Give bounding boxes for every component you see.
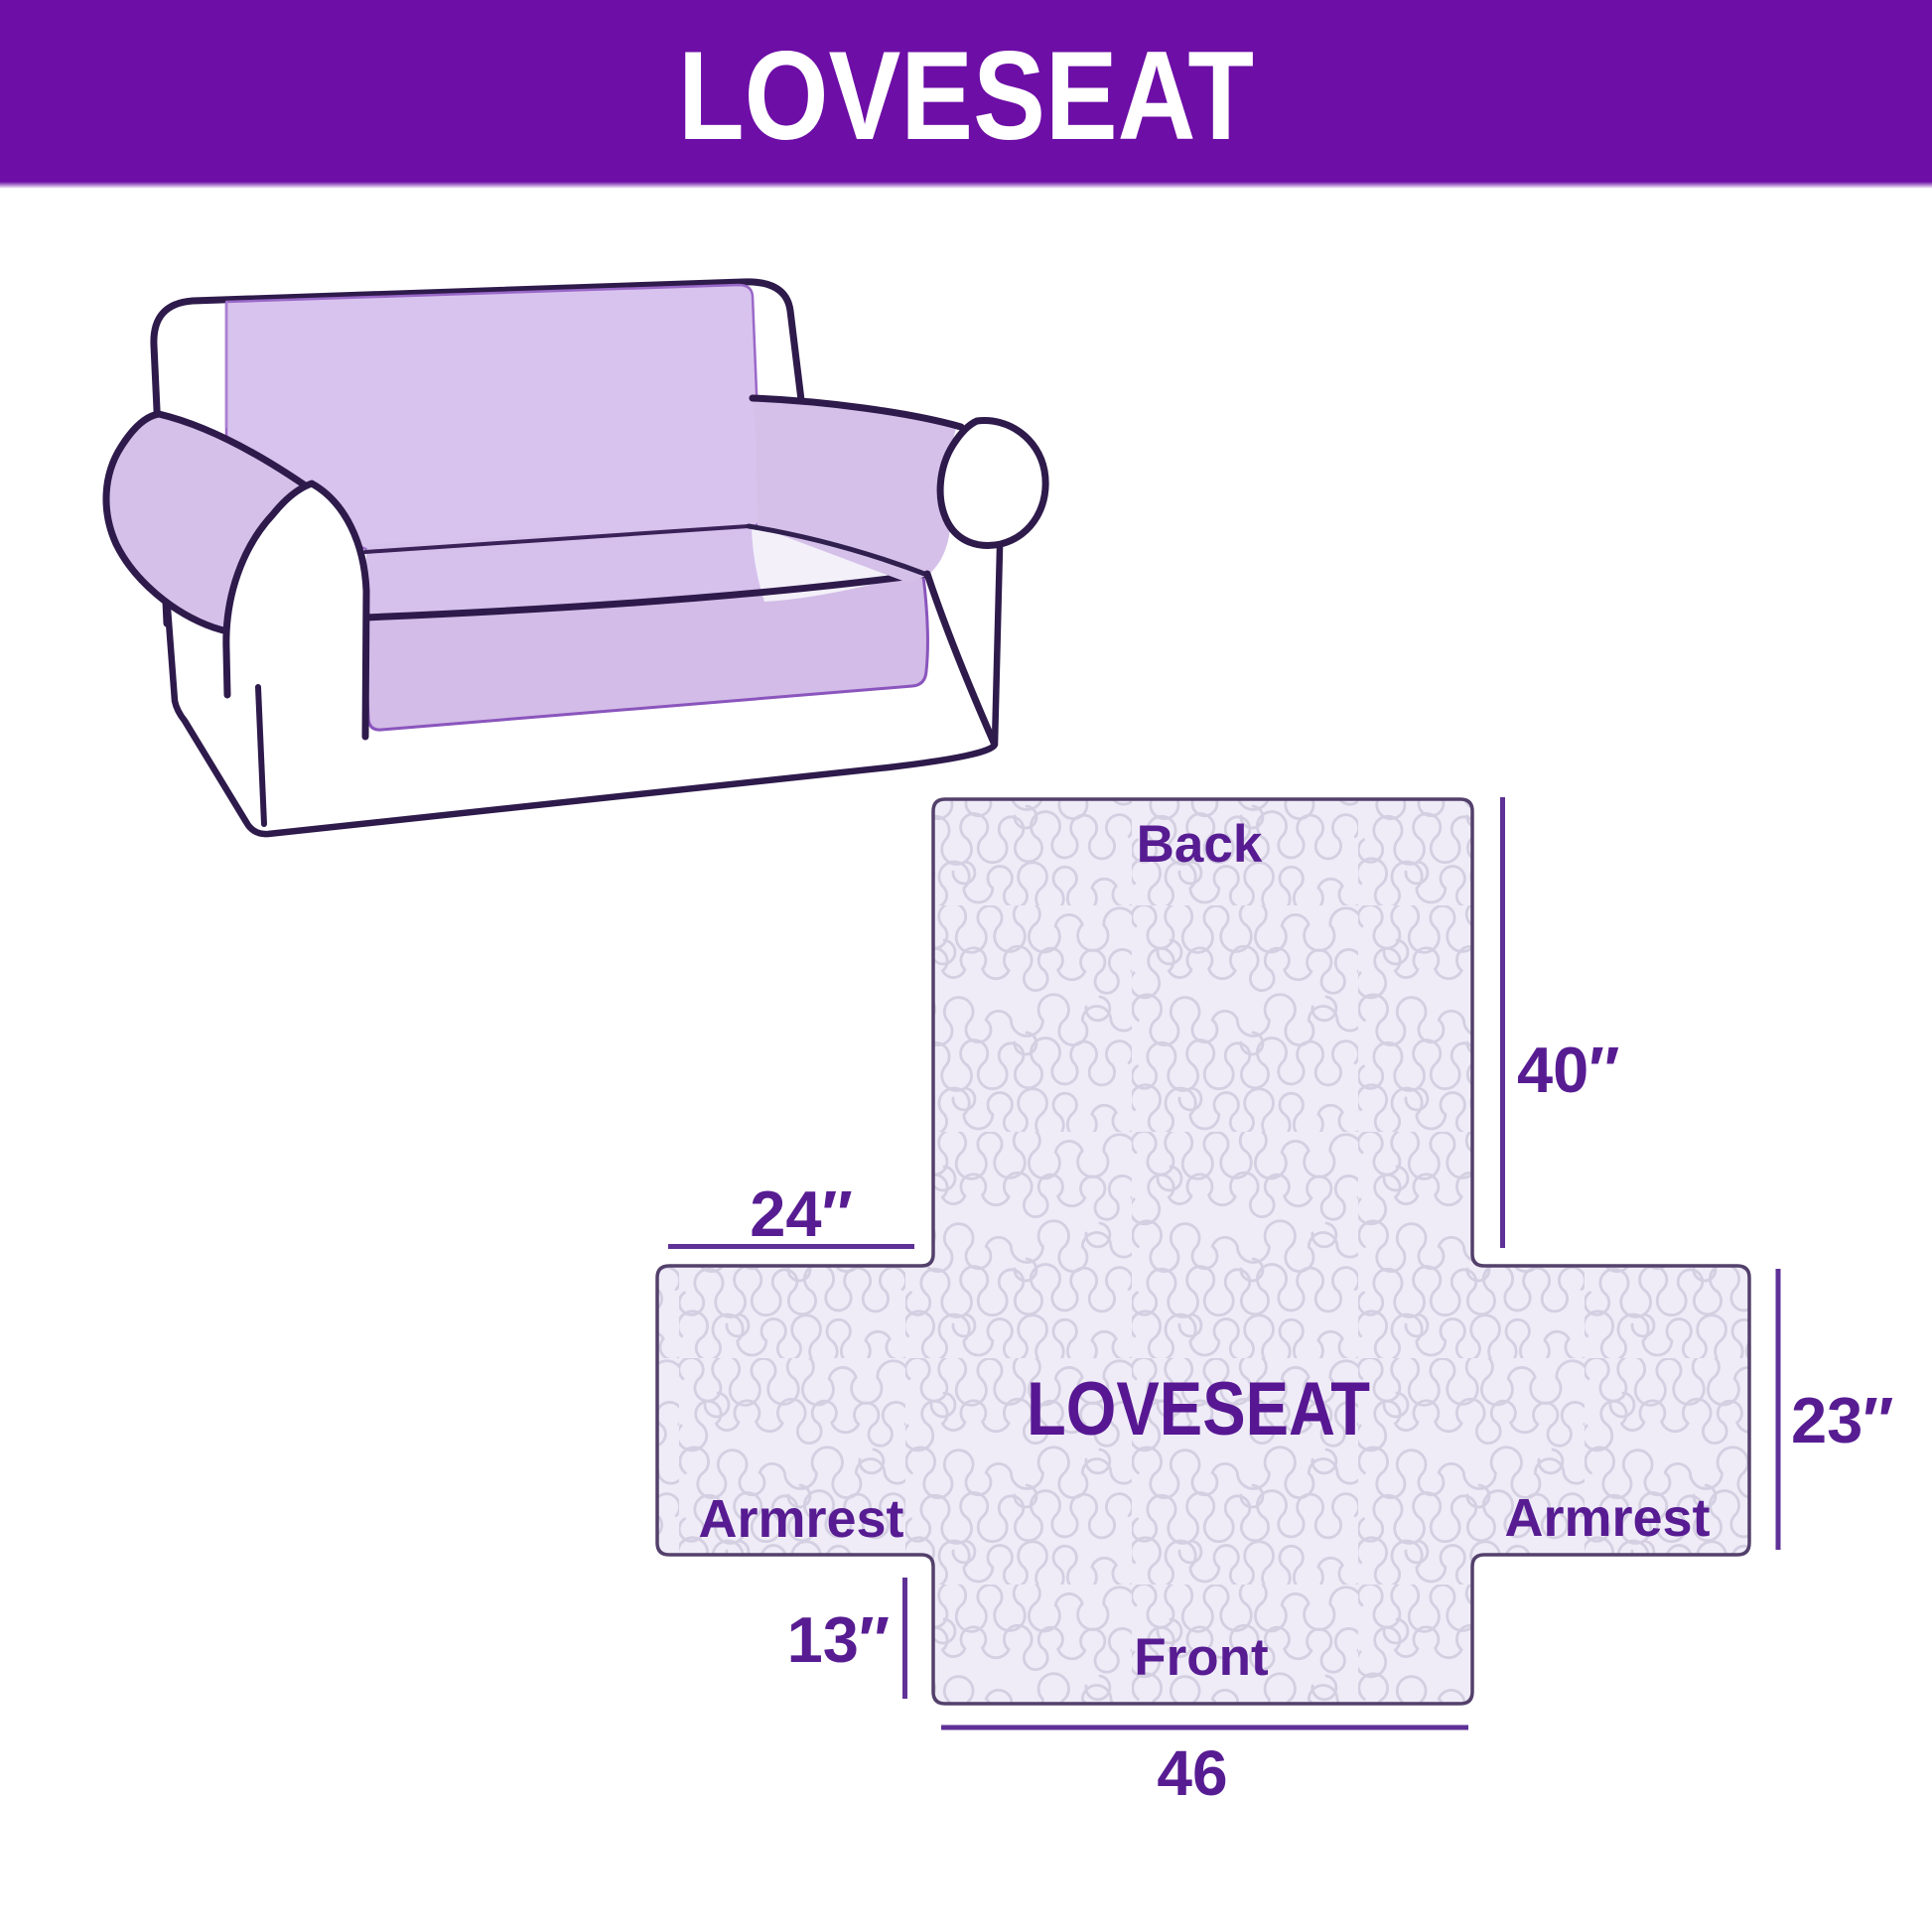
svg-text:LOVESEAT: LOVESEAT (1027, 1367, 1370, 1451)
svg-text:Front: Front (1134, 1628, 1268, 1687)
svg-text:Back: Back (1137, 815, 1263, 874)
svg-text:46: 46 (1157, 1737, 1227, 1809)
svg-text:LOVESEAT: LOVESEAT (678, 25, 1254, 166)
svg-text:40″: 40″ (1517, 1034, 1619, 1106)
svg-text:Armrest: Armrest (1504, 1488, 1710, 1548)
svg-text:13″: 13″ (787, 1603, 890, 1676)
svg-text:Armrest: Armrest (698, 1489, 903, 1549)
svg-text:24″: 24″ (750, 1177, 852, 1250)
svg-text:23″: 23″ (1791, 1384, 1893, 1456)
